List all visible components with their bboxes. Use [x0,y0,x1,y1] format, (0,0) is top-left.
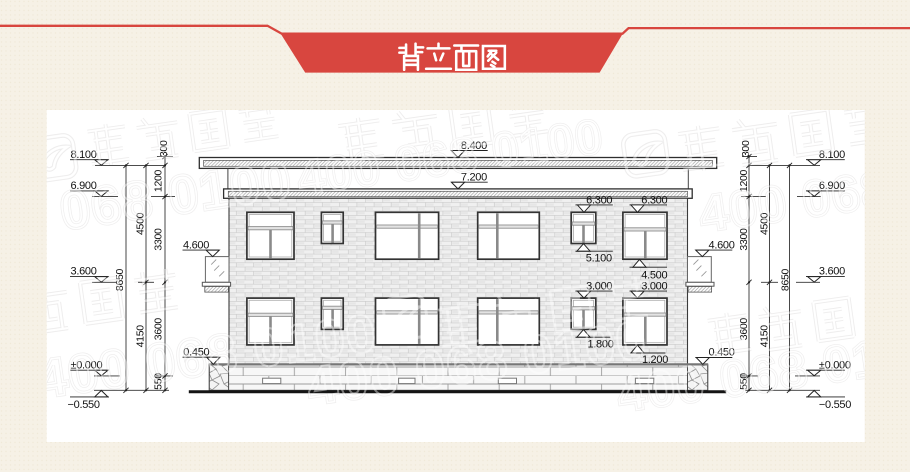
svg-text:3300: 3300 [153,228,165,251]
svg-text:4.600: 4.600 [183,239,209,251]
svg-text:3.600: 3.600 [71,266,97,278]
svg-text:−0.550: −0.550 [819,399,851,411]
svg-text:4.500: 4.500 [641,269,667,281]
svg-text:8650: 8650 [779,268,791,291]
svg-text:5.100: 5.100 [586,253,612,265]
svg-text:300: 300 [740,140,752,157]
svg-text:3.600: 3.600 [819,266,845,278]
